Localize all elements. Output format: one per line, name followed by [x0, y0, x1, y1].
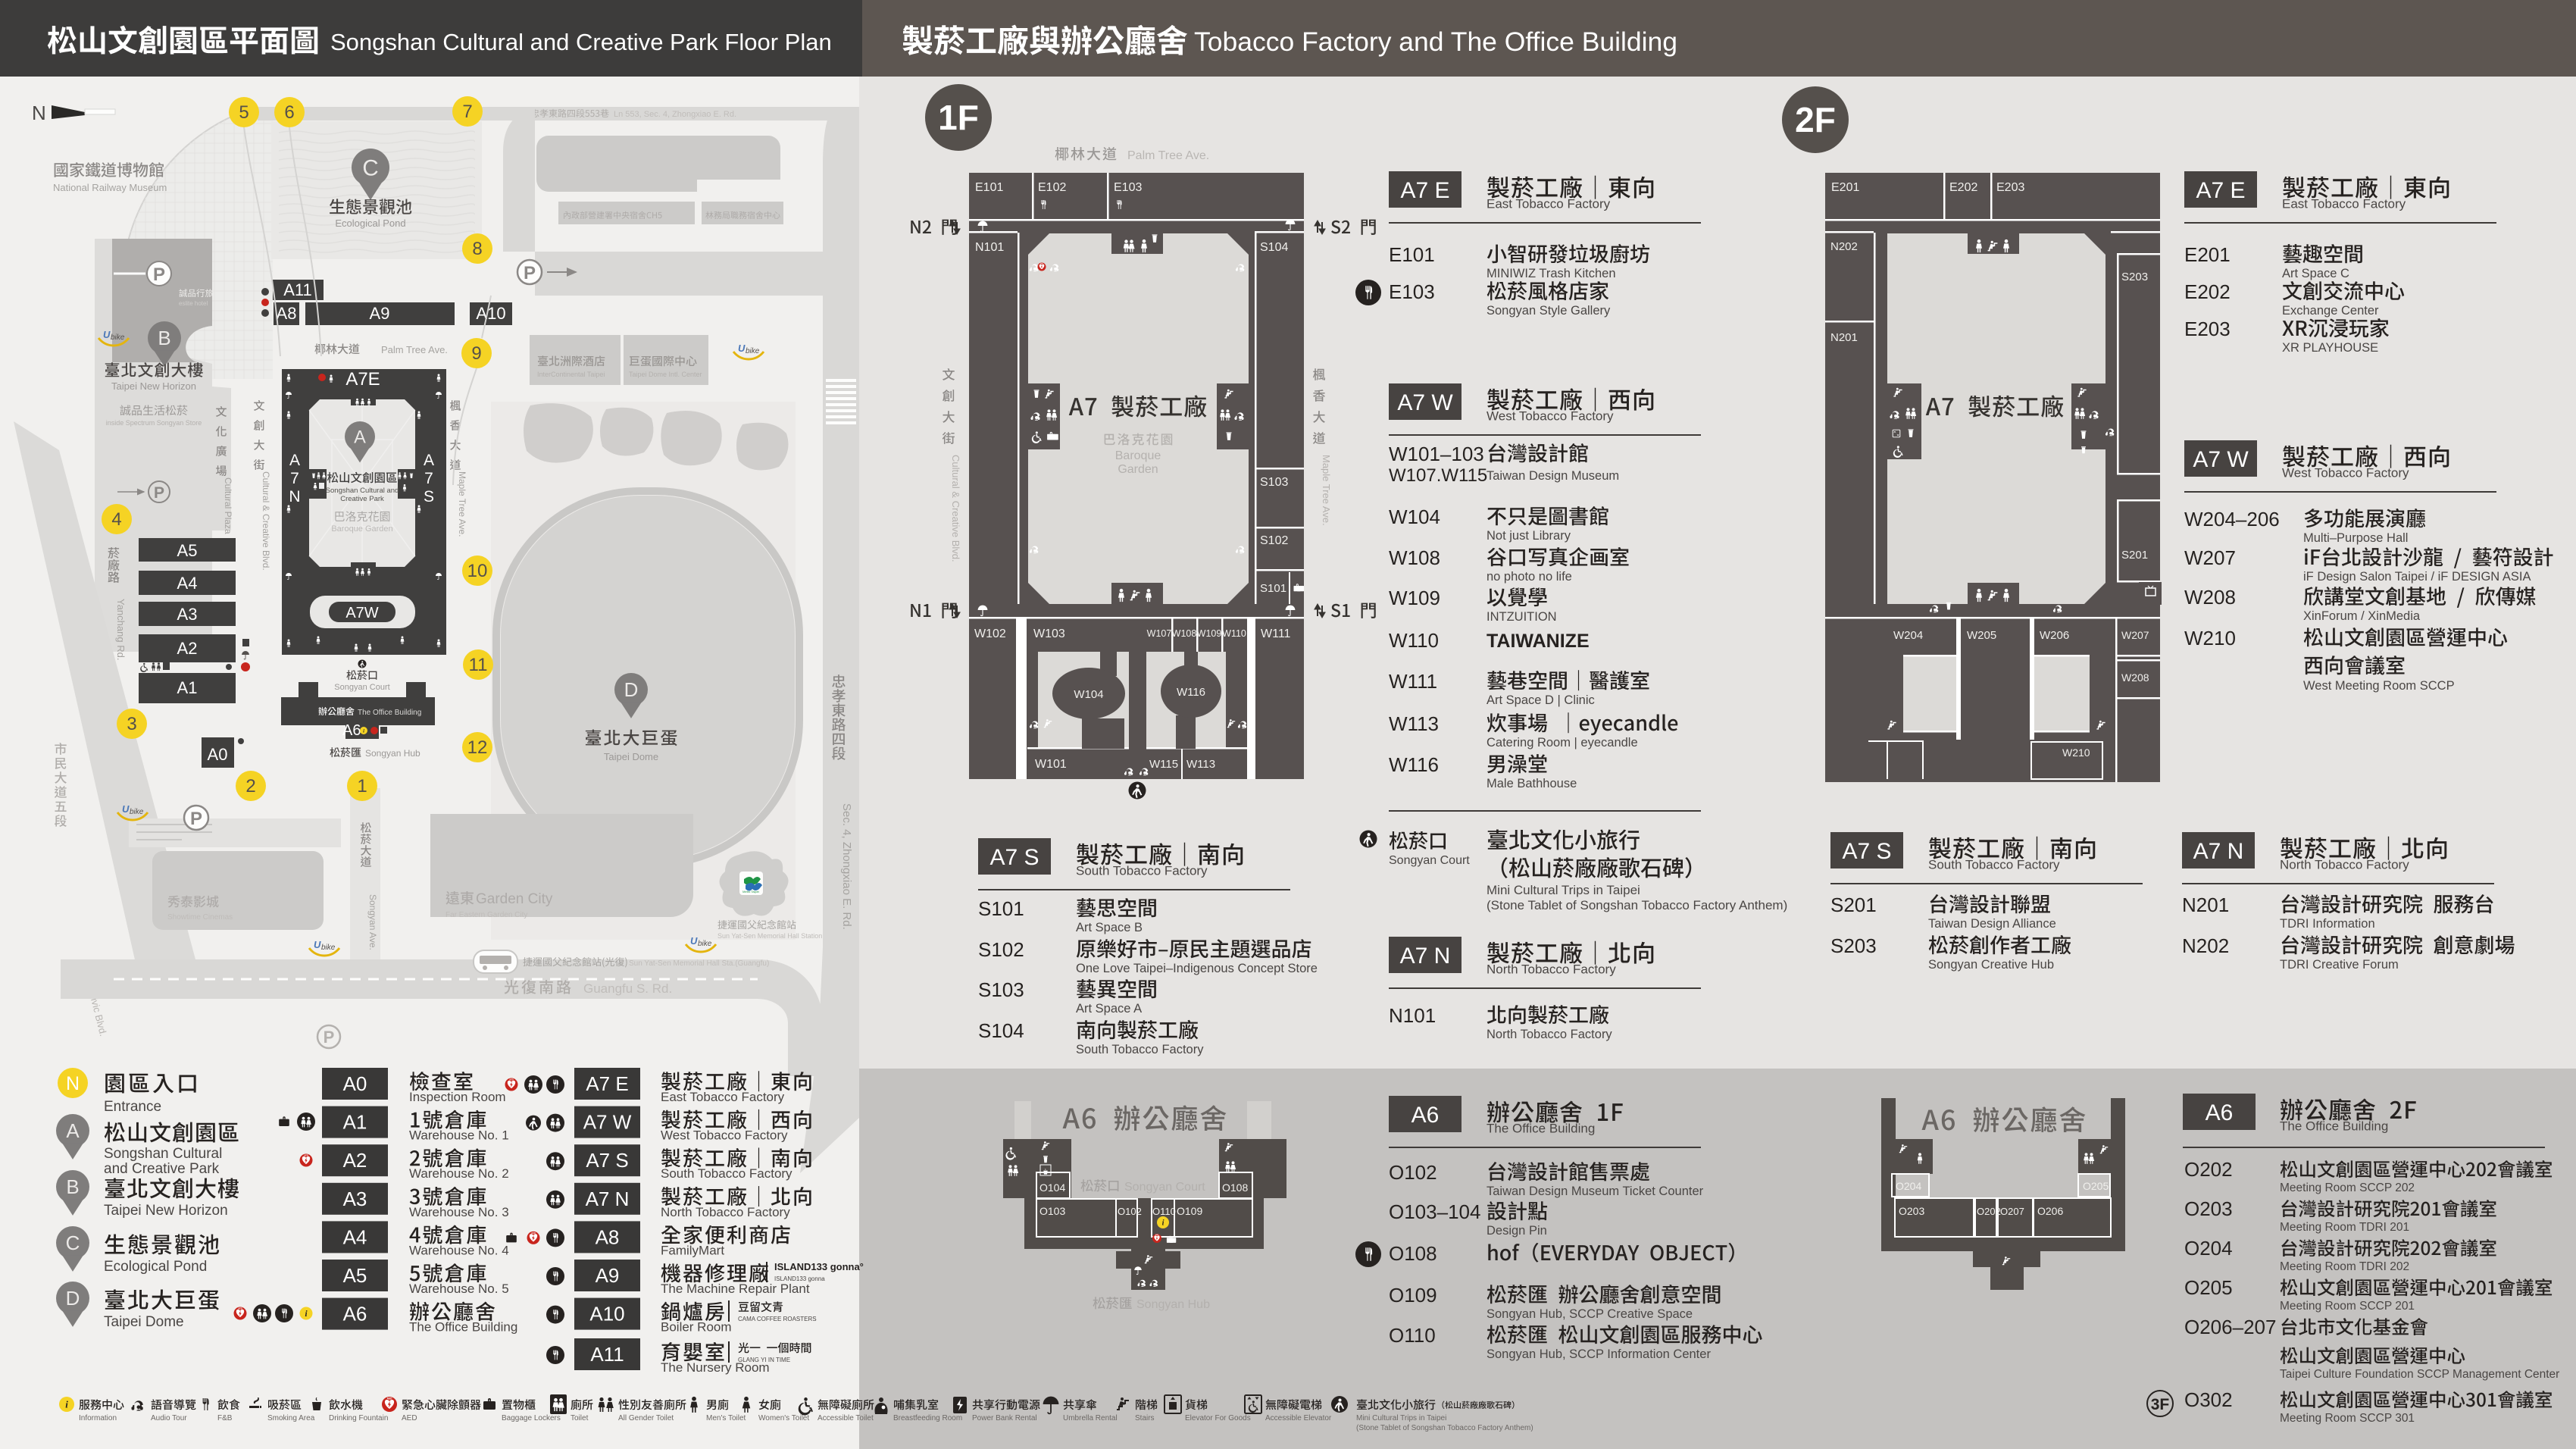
svg-text:N: N [289, 488, 300, 505]
svg-text:Sun Yat-Sen Memorial Hall Sta.: Sun Yat-Sen Memorial Hall Sta.(Guangfu) [629, 959, 769, 968]
svg-text:O204: O204 [1896, 1180, 1921, 1192]
svg-text:Taiwan Design Museum: Taiwan Design Museum [1487, 469, 1619, 483]
svg-text:XR PLAYHOUSE: XR PLAYHOUSE [2282, 341, 2378, 355]
svg-text:O205: O205 [2184, 1276, 2233, 1299]
svg-text:Audio Tour: Audio Tour [151, 1414, 187, 1422]
svg-text:AED: AED [509, 1078, 514, 1081]
svg-text:The Office Building: The Office Building [409, 1320, 517, 1335]
svg-text:A7W: A7W [345, 605, 378, 621]
svg-text:W113: W113 [1389, 712, 1439, 735]
svg-text:Garden City: Garden City [476, 891, 553, 907]
svg-text:Men's Toilet: Men's Toilet [706, 1414, 746, 1422]
svg-text:Warehouse No. 1: Warehouse No. 1 [409, 1128, 509, 1143]
svg-text:Warehouse No. 5: Warehouse No. 5 [409, 1282, 509, 1296]
svg-text:Maple Tree Ave.: Maple Tree Ave. [1321, 455, 1332, 526]
svg-text:East Tobacco Factory: East Tobacco Factory [1487, 197, 1611, 211]
svg-text:Songyan Creative Hub: Songyan Creative Hub [1928, 958, 2054, 972]
svg-text:S: S [424, 488, 434, 505]
svg-text:P: P [524, 263, 536, 283]
svg-text:Yanchang Rd.: Yanchang Rd. [115, 599, 127, 660]
svg-text:(Stone Tablet of Songshan Toba: (Stone Tablet of Songshan Tobacco Factor… [1356, 1424, 1533, 1432]
svg-text:N201: N201 [2182, 893, 2229, 916]
svg-text:Songyan Court: Songyan Court [334, 683, 389, 692]
svg-text:Art Space A: Art Space A [1076, 1002, 1142, 1016]
svg-text:Maple Tree Ave.: Maple Tree Ave. [457, 471, 467, 537]
svg-text:A4: A4 [343, 1225, 367, 1248]
svg-text:South Tobacco Factory: South Tobacco Factory [1928, 858, 2060, 872]
svg-text:Male Bathhouse: Male Bathhouse [1487, 777, 1577, 790]
svg-text:Women's Toilet: Women's Toilet [758, 1414, 809, 1422]
svg-text:A9: A9 [596, 1264, 620, 1287]
svg-text:Garden: Garden [1118, 463, 1158, 476]
svg-text:A: A [289, 452, 300, 469]
svg-text:C: C [362, 156, 378, 181]
svg-text:11: 11 [469, 655, 488, 675]
svg-text:F&B: F&B [217, 1414, 233, 1422]
svg-text:Accessible Elevator: Accessible Elevator [1265, 1414, 1332, 1422]
svg-text:bike: bike [746, 347, 760, 355]
svg-text:A3: A3 [343, 1188, 367, 1210]
svg-text:Mini Cultural Trips in Taipei: Mini Cultural Trips in Taipei [1487, 883, 1640, 897]
svg-text:E202: E202 [1949, 181, 1977, 194]
svg-text:FamilyMart: FamilyMart [661, 1243, 724, 1257]
svg-text:6: 6 [284, 102, 294, 123]
svg-text:The Office Building: The Office Building [1487, 1122, 1595, 1136]
svg-text:Taiwan Design Museum Ticket Co: Taiwan Design Museum Ticket Counter [1487, 1185, 1704, 1198]
svg-text:Songyan Style Gallery: Songyan Style Gallery [1487, 304, 1611, 318]
svg-text:Taipei Dome: Taipei Dome [104, 1314, 184, 1330]
svg-text:D: D [66, 1287, 80, 1310]
svg-text:Entrance: Entrance [104, 1099, 161, 1115]
svg-text:A6: A6 [2206, 1100, 2234, 1125]
svg-text:Songyan Hub: Songyan Hub [1136, 1298, 1210, 1311]
svg-text:1F: 1F [938, 98, 979, 137]
svg-text:A7 S: A7 S [989, 845, 1039, 870]
svg-text:S203: S203 [2121, 271, 2148, 283]
svg-text:Sun Yat-Sen Memorial Hall Stat: Sun Yat-Sen Memorial Hall Station [717, 932, 822, 940]
svg-text:B: B [66, 1175, 79, 1198]
svg-text:Toilet: Toilet [571, 1414, 589, 1422]
svg-text:inside Spectrum Songyan Store: inside Spectrum Songyan Store [106, 419, 202, 427]
svg-text:S201: S201 [2121, 549, 2148, 562]
svg-text:A7 W: A7 W [583, 1111, 632, 1134]
svg-text:O110: O110 [1389, 1324, 1436, 1347]
svg-text:Ln 553, Sec. 4, Zhongxiao E. R: Ln 553, Sec. 4, Zhongxiao E. Rd. [614, 110, 736, 119]
svg-text:Guangfu S. Rd.: Guangfu S. Rd. [583, 981, 672, 996]
svg-text:W208: W208 [2184, 586, 2236, 609]
svg-text:Design Pin: Design Pin [1487, 1224, 1547, 1238]
svg-text:A7 E: A7 E [2196, 178, 2245, 203]
svg-text:A5: A5 [177, 541, 198, 560]
svg-text:8: 8 [472, 239, 482, 259]
svg-text:O108: O108 [1222, 1181, 1248, 1194]
svg-text:3: 3 [127, 714, 136, 734]
svg-text:S203: S203 [1830, 934, 1877, 957]
svg-text:North Tobacco Factory: North Tobacco Factory [2280, 858, 2409, 872]
svg-text:A7 E: A7 E [586, 1072, 628, 1095]
svg-text:O205: O205 [2083, 1180, 2109, 1192]
svg-text:P: P [154, 484, 164, 502]
svg-text:7: 7 [462, 102, 472, 122]
svg-text:Power Bank Rental: Power Bank Rental [972, 1414, 1037, 1422]
svg-text:Meeting Room SCCP 202: Meeting Room SCCP 202 [2280, 1181, 2415, 1194]
svg-text:10: 10 [467, 561, 488, 581]
svg-text:bike: bike [321, 944, 336, 952]
svg-text:O103: O103 [1039, 1205, 1065, 1217]
svg-text:A2: A2 [343, 1149, 367, 1172]
svg-text:N201: N201 [1830, 331, 1858, 344]
svg-text:Accessible Toilet: Accessible Toilet [818, 1414, 874, 1422]
svg-text:i: i [65, 1399, 68, 1410]
svg-text:Songyan Hub: Songyan Hub [365, 748, 420, 759]
svg-text:West Tobacco Factory: West Tobacco Factory [1487, 409, 1614, 424]
svg-text:All Gender Toilet: All Gender Toilet [618, 1414, 674, 1422]
svg-text:South Tobacco Factory: South Tobacco Factory [1076, 864, 1208, 878]
svg-text:D: D [624, 678, 639, 701]
svg-text:CAMA COFFEE ROASTERS: CAMA COFFEE ROASTERS [738, 1316, 817, 1322]
svg-text:A7 N: A7 N [1400, 944, 1451, 969]
svg-text:S104: S104 [978, 1019, 1024, 1042]
svg-text:A10: A10 [589, 1303, 624, 1325]
svg-text:A9: A9 [370, 304, 390, 323]
svg-text:O302: O302 [2184, 1388, 2233, 1411]
svg-text:TDRI Creative Forum: TDRI Creative Forum [2280, 958, 2399, 972]
svg-text:Creative Park: Creative Park [340, 495, 384, 503]
svg-text:Warehouse No. 3: Warehouse No. 3 [409, 1205, 509, 1219]
svg-text:W110: W110 [1389, 629, 1439, 652]
svg-text:West Tobacco Factory: West Tobacco Factory [661, 1128, 788, 1143]
svg-text:S103: S103 [1260, 476, 1288, 489]
svg-text:Songyan Ave.: Songyan Ave. [367, 894, 378, 950]
svg-text:2F: 2F [1795, 100, 1836, 139]
svg-text:W207: W207 [2121, 629, 2149, 641]
svg-text:bike: bike [130, 808, 144, 816]
svg-text:bike: bike [698, 940, 712, 948]
svg-text:Songshan Cultural: Songshan Cultural [104, 1146, 222, 1162]
svg-text:East Tobacco Factory: East Tobacco Factory [2282, 197, 2406, 211]
svg-text:Songyan Hub, SCCP Information: Songyan Hub, SCCP Information Center [1487, 1347, 1711, 1361]
svg-text:N202: N202 [1830, 240, 1858, 253]
svg-text:O102: O102 [1389, 1161, 1437, 1184]
svg-text:West Tobacco Factory: West Tobacco Factory [2282, 466, 2409, 480]
svg-text:Drinking Fountain: Drinking Fountain [329, 1414, 388, 1422]
svg-text:3F: 3F [2151, 1396, 2170, 1413]
svg-text:A: A [66, 1119, 80, 1142]
svg-text:W204: W204 [1893, 629, 1923, 642]
svg-text:5: 5 [239, 102, 249, 123]
svg-text:S101: S101 [1260, 582, 1286, 595]
svg-text:O207: O207 [2000, 1206, 2024, 1217]
svg-text:W108: W108 [1172, 628, 1197, 639]
svg-text:Meeting Room TDRI 202: Meeting Room TDRI 202 [2280, 1260, 2409, 1273]
svg-text:E103: E103 [1114, 181, 1142, 194]
svg-text:Taipei New Horizon: Taipei New Horizon [104, 1203, 228, 1219]
svg-text:A7 W: A7 W [2193, 447, 2249, 472]
svg-text:4: 4 [111, 509, 121, 530]
svg-text:W104: W104 [1389, 505, 1440, 528]
svg-text:The Machine Repair Plant: The Machine Repair Plant [661, 1282, 810, 1296]
svg-text:GLANG YI IN TIME: GLANG YI IN TIME [738, 1357, 790, 1363]
svg-text:Ecological Pond: Ecological Pond [104, 1259, 207, 1275]
svg-text:Baroque: Baroque [1115, 449, 1161, 462]
svg-text:A1: A1 [177, 678, 198, 697]
svg-text:E101: E101 [975, 181, 1003, 194]
svg-text:O203: O203 [2184, 1197, 2233, 1220]
svg-text:E203: E203 [1996, 181, 2024, 194]
svg-text:W101: W101 [1035, 758, 1067, 771]
svg-text:S102: S102 [1260, 534, 1288, 547]
svg-text:W101–103: W101–103 [1389, 443, 1484, 465]
svg-text:W108: W108 [1389, 546, 1440, 569]
svg-text:Information: Information [79, 1414, 117, 1422]
svg-text:AED: AED [402, 1414, 417, 1422]
svg-text:The Office Building: The Office Building [358, 709, 421, 717]
svg-text:Breastfeeding Room: Breastfeeding Room [893, 1414, 962, 1422]
svg-text:Showtime Cinemas: Showtime Cinemas [167, 913, 233, 922]
svg-text:N202: N202 [2182, 934, 2229, 957]
svg-text:P: P [190, 809, 202, 829]
svg-text:Taiwan Design Alliance: Taiwan Design Alliance [1928, 917, 2056, 931]
svg-text:O109: O109 [1177, 1205, 1202, 1217]
svg-text:A8: A8 [277, 304, 297, 323]
svg-text:A6: A6 [342, 722, 361, 739]
svg-text:Songyan Court: Songyan Court [1389, 854, 1470, 867]
svg-text:A10: A10 [476, 304, 505, 323]
svg-text:National Railway Museum: National Railway Museum [53, 182, 167, 193]
svg-text:A8: A8 [596, 1225, 620, 1248]
svg-text:Songyan Court: Songyan Court [1124, 1181, 1205, 1194]
svg-text:7: 7 [290, 470, 299, 487]
svg-text:W104: W104 [1074, 688, 1103, 701]
svg-text:Baroque Garden: Baroque Garden [331, 524, 392, 534]
svg-text:B: B [158, 327, 170, 349]
svg-text:E103: E103 [1389, 280, 1435, 303]
svg-text:W111: W111 [1389, 670, 1437, 693]
svg-text:O206–207: O206–207 [2184, 1316, 2276, 1338]
svg-text:N101: N101 [975, 241, 1004, 254]
svg-text:Baggage Lockers: Baggage Lockers [502, 1414, 561, 1422]
svg-text:South Tobacco Factory: South Tobacco Factory [661, 1166, 792, 1181]
svg-text:AED: AED [387, 1397, 392, 1400]
svg-text:bike: bike [111, 333, 125, 342]
svg-text:Cultural & Creative Blvd.: Cultural & Creative Blvd. [261, 471, 271, 571]
svg-text:i: i [363, 728, 364, 734]
svg-text:Metro Taipei: Metro Taipei [742, 890, 759, 893]
svg-text:Cultural & Creative Blvd.: Cultural & Creative Blvd. [950, 455, 961, 562]
svg-text:7: 7 [424, 470, 433, 487]
svg-text:W113: W113 [1186, 758, 1215, 771]
svg-text:O109: O109 [1389, 1284, 1437, 1307]
svg-text:O110: O110 [1152, 1206, 1176, 1217]
svg-text:West Meeting Room SCCP: West Meeting Room SCCP [2303, 679, 2455, 693]
svg-text:W109: W109 [1197, 628, 1222, 639]
svg-text:E202: E202 [2184, 280, 2231, 303]
svg-text:W111: W111 [1261, 627, 1291, 640]
svg-text:A4: A4 [177, 574, 198, 593]
svg-text:A5: A5 [343, 1264, 367, 1287]
svg-text:O102: O102 [1118, 1206, 1142, 1217]
svg-text:InterContinental Taipei: InterContinental Taipei [537, 371, 605, 378]
svg-text:eslite hotel: eslite hotel [179, 300, 208, 307]
svg-text:North Tobacco Factory: North Tobacco Factory [1487, 962, 1616, 977]
svg-text:O202: O202 [1977, 1206, 2001, 1217]
svg-text:A1: A1 [343, 1111, 367, 1134]
svg-text:Songyan Hub, SCCP Creative Spa: Songyan Hub, SCCP Creative Space [1487, 1307, 1693, 1321]
svg-text:U: U [690, 935, 698, 947]
svg-text:Exchange Center: Exchange Center [2282, 304, 2379, 318]
svg-text:W116: W116 [1177, 686, 1205, 699]
svg-text:Multi–Purpose Hall: Multi–Purpose Hall [2303, 531, 2408, 545]
svg-text:W207: W207 [2184, 546, 2236, 569]
svg-text:W109: W109 [1389, 587, 1440, 609]
svg-text:P: P [153, 264, 165, 285]
svg-text:Taipei Dome Intl. Center: Taipei Dome Intl. Center [629, 371, 702, 378]
svg-text:C: C [66, 1231, 80, 1254]
svg-text:Smoking Area: Smoking Area [267, 1414, 315, 1422]
svg-text:N: N [32, 102, 46, 124]
svg-text:E102: E102 [1038, 181, 1066, 194]
svg-text:Ecological Pond: Ecological Pond [335, 218, 405, 229]
svg-text:MINIWIZ Trash Kitchen: MINIWIZ Trash Kitchen [1487, 267, 1616, 280]
svg-text:Palm Tree Ave.: Palm Tree Ave. [381, 344, 448, 355]
svg-text:ISLAND133 gonna°: ISLAND133 gonna° [774, 1261, 864, 1272]
svg-text:A11: A11 [283, 280, 312, 299]
svg-text:Art Space C: Art Space C [2282, 267, 2349, 280]
svg-text:O203: O203 [1899, 1205, 1924, 1217]
svg-text:W210: W210 [2062, 746, 2090, 759]
svg-text:XinForum / XinMedia: XinForum / XinMedia [2303, 609, 2421, 623]
svg-text:U: U [738, 343, 746, 354]
svg-text:A2: A2 [177, 639, 198, 658]
svg-text:TDRI Information: TDRI Information [2280, 917, 2375, 931]
svg-text:A3: A3 [177, 605, 198, 624]
svg-text:iF Design Salon Taipei / iF DE: iF Design Salon Taipei / iF DESIGN ASIA [2303, 570, 2531, 584]
svg-text:O108: O108 [1389, 1242, 1437, 1265]
svg-text:TAIWANIZE: TAIWANIZE [1487, 631, 1590, 652]
svg-text:Far Eastern Garden City: Far Eastern Garden City [445, 911, 527, 919]
svg-text:W116: W116 [1389, 753, 1439, 776]
svg-text:The Office Building: The Office Building [2280, 1119, 2388, 1134]
svg-text:P: P [324, 1028, 335, 1047]
svg-text:North Tobacco Factory: North Tobacco Factory [1487, 1028, 1612, 1041]
svg-text:A11: A11 [590, 1343, 624, 1366]
svg-text:Songshan Cultural and Creative: Songshan Cultural and Creative Park Floo… [330, 29, 832, 55]
svg-text:A0: A0 [343, 1072, 367, 1095]
svg-text:North Tobacco Factory: North Tobacco Factory [661, 1205, 790, 1219]
svg-text:AED: AED [531, 1231, 536, 1235]
svg-text:Umbrella Rental: Umbrella Rental [1063, 1414, 1118, 1422]
svg-text:(Stone Tablet of Songshan Toba: (Stone Tablet of Songshan Tobacco Factor… [1487, 898, 1787, 912]
svg-text:U: U [103, 329, 111, 340]
svg-text:Mini Cultural Trips in Taipei: Mini Cultural Trips in Taipei [1356, 1414, 1446, 1422]
svg-text:Art Space D | Clinic: Art Space D | Clinic [1487, 693, 1595, 707]
svg-text:N: N [66, 1073, 80, 1094]
svg-text:E203: E203 [2184, 318, 2231, 340]
svg-text:Meeting Room SCCP 201: Meeting Room SCCP 201 [2280, 1300, 2415, 1313]
svg-text:E201: E201 [1831, 181, 1859, 194]
svg-text:East Tobacco Factory: East Tobacco Factory [661, 1090, 785, 1104]
svg-text:A7E: A7E [345, 369, 380, 390]
svg-text:2: 2 [245, 776, 255, 796]
svg-text:W210: W210 [2184, 627, 2236, 649]
svg-text:S101: S101 [978, 897, 1024, 920]
svg-text:Taipei Dome: Taipei Dome [604, 751, 658, 762]
svg-text:E101: E101 [1389, 243, 1435, 266]
svg-text:S104: S104 [1260, 241, 1288, 254]
svg-text:W204–206: W204–206 [2184, 508, 2280, 530]
svg-text:O204: O204 [2184, 1237, 2233, 1260]
svg-text:W110: W110 [1222, 628, 1246, 639]
svg-text:9: 9 [471, 343, 481, 364]
svg-text:Catering Room | eyecandle: Catering Room | eyecandle [1487, 736, 1638, 750]
svg-text:INTZUITION: INTZUITION [1487, 610, 1557, 624]
svg-text:N101: N101 [1389, 1004, 1436, 1027]
svg-text:Taipei Culture Foundation SCCP: Taipei Culture Foundation SCCP Managemen… [2280, 1368, 2559, 1381]
svg-text:A7 N: A7 N [586, 1188, 630, 1210]
svg-text:A6: A6 [1411, 1103, 1440, 1128]
svg-text:1: 1 [357, 776, 367, 796]
svg-text:Sec. 4, Zhongxiao E. Rd.: Sec. 4, Zhongxiao E. Rd. [840, 803, 853, 930]
svg-text:12: 12 [467, 737, 488, 758]
svg-text:Stairs: Stairs [1135, 1414, 1155, 1422]
svg-text:Cultural Plaza: Cultural Plaza [223, 477, 233, 534]
svg-text:AED: AED [304, 1153, 308, 1156]
svg-text:A7 S: A7 S [586, 1149, 628, 1172]
svg-text:A7 N: A7 N [2193, 839, 2244, 864]
svg-text:W107: W107 [1147, 628, 1172, 639]
svg-text:Inspection Room: Inspection Room [409, 1090, 506, 1104]
svg-text:S102: S102 [978, 938, 1024, 961]
svg-text:AED: AED [238, 1307, 242, 1310]
svg-text:Meeting Room TDRI 201: Meeting Room TDRI 201 [2280, 1221, 2409, 1234]
svg-text:W205: W205 [1967, 629, 1996, 642]
svg-text:W206: W206 [2040, 629, 2069, 642]
svg-text:S103: S103 [978, 978, 1024, 1001]
svg-text:One Love Taipei–Indigenous Con: One Love Taipei–Indigenous Concept Store [1076, 962, 1318, 975]
svg-text:Tobacco Factory and The Office: Tobacco Factory and The Office Building [1194, 27, 1677, 57]
svg-text:Warehouse No. 2: Warehouse No. 2 [409, 1166, 509, 1181]
svg-text:A: A [424, 452, 434, 469]
svg-text:Warehouse No. 4: Warehouse No. 4 [409, 1243, 509, 1257]
svg-text:E201: E201 [2184, 243, 2231, 266]
svg-text:W107.W115: W107.W115 [1389, 465, 1487, 486]
svg-text:South Tobacco Factory: South Tobacco Factory [1076, 1043, 1204, 1056]
svg-text:W208: W208 [2121, 671, 2149, 684]
svg-text:Taipei New Horizon: Taipei New Horizon [111, 380, 196, 392]
svg-text:U: U [122, 803, 130, 815]
svg-text:i: i [1162, 1219, 1165, 1228]
svg-text:ISLAND133 gonna: ISLAND133 gonna [774, 1275, 825, 1282]
svg-text:Palm Tree Ave.: Palm Tree Ave. [1127, 149, 1209, 162]
svg-text:A: A [354, 427, 366, 447]
svg-text:U: U [314, 939, 321, 950]
svg-text:Elevator For Goods: Elevator For Goods [1185, 1414, 1251, 1422]
svg-text:A0: A0 [208, 745, 228, 764]
svg-text:A7 S: A7 S [1842, 839, 1891, 864]
svg-text:W115: W115 [1149, 758, 1178, 771]
svg-text:W102: W102 [974, 627, 1006, 640]
svg-text:O206: O206 [2037, 1205, 2063, 1217]
svg-text:O103–104: O103–104 [1389, 1200, 1480, 1223]
svg-text:W103: W103 [1033, 627, 1065, 640]
svg-text:Songshan Cultural and: Songshan Cultural and [326, 487, 399, 495]
svg-text:A7 W: A7 W [1397, 390, 1453, 415]
svg-text:Not just Library: Not just Library [1487, 529, 1571, 543]
svg-text:and Creative Park: and Creative Park [104, 1161, 220, 1177]
svg-text:Boiler Room: Boiler Room [661, 1320, 732, 1335]
svg-text:no photo no life: no photo no life [1487, 570, 1572, 584]
svg-text:Meeting Room SCCP 301: Meeting Room SCCP 301 [2280, 1412, 2415, 1425]
